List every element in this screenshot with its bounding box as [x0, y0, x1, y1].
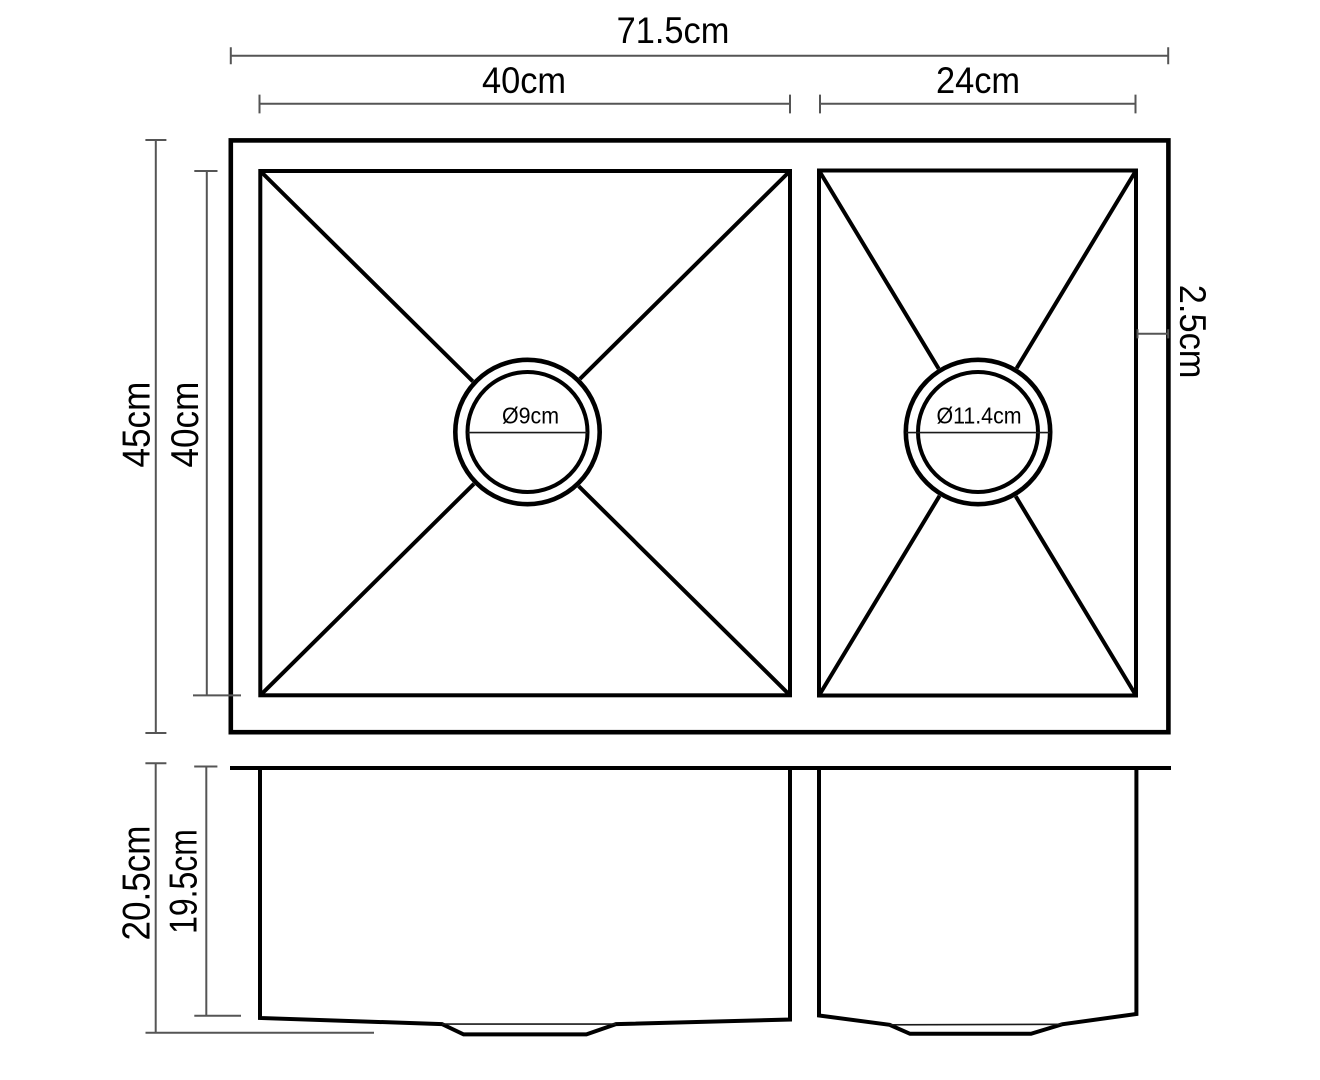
svg-text:Ø11.4cm: Ø11.4cm: [936, 403, 1021, 429]
svg-text:24cm: 24cm: [936, 60, 1020, 101]
svg-text:40cm: 40cm: [162, 382, 206, 468]
svg-text:71.5cm: 71.5cm: [617, 10, 730, 51]
svg-text:45cm: 45cm: [114, 382, 158, 468]
svg-text:40cm: 40cm: [482, 60, 566, 101]
svg-text:19.5cm: 19.5cm: [162, 829, 206, 934]
svg-text:Ø9cm: Ø9cm: [502, 403, 559, 429]
svg-text:20.5cm: 20.5cm: [114, 825, 158, 940]
svg-text:2.5cm: 2.5cm: [1172, 285, 1213, 379]
